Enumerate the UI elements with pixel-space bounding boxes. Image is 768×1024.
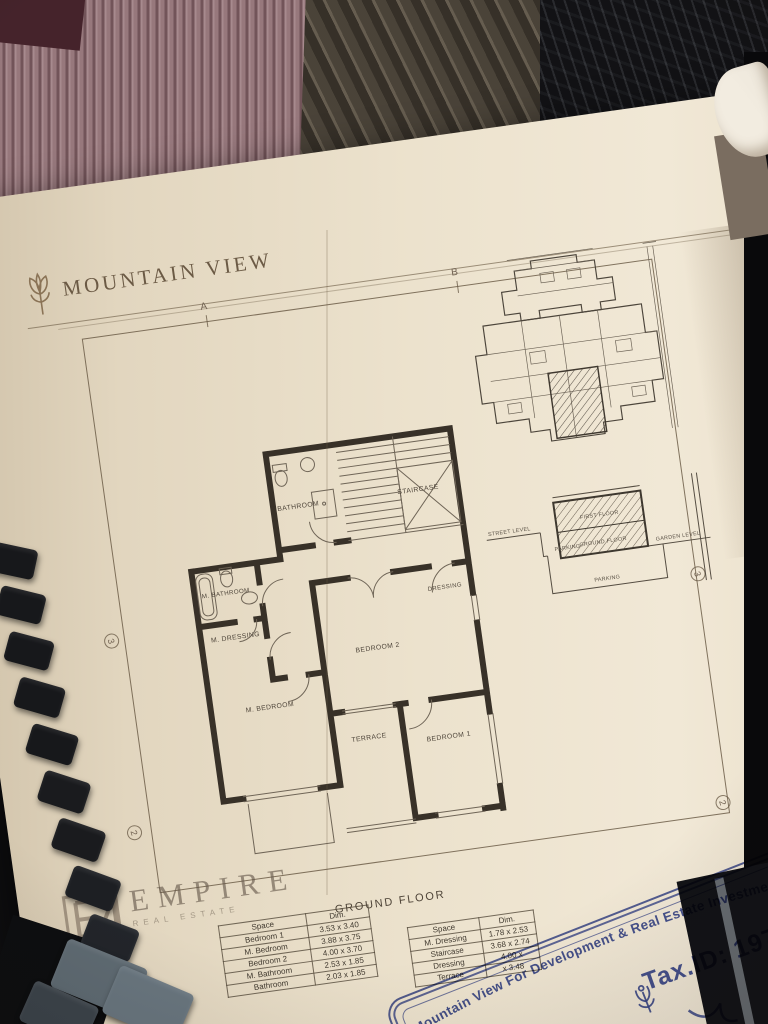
stamp-signature-stroke	[689, 995, 738, 1024]
section-street-level-label: STREET LEVEL	[488, 526, 531, 538]
fabric-maroon-corner	[0, 0, 86, 51]
room-label-m-bedroom: M. BEDROOM	[245, 701, 294, 715]
section-parking-lower-label: PARKING	[594, 574, 621, 584]
floor-plan: BATHROOM STAIRCASE M. BATHROOM M. DRESSI…	[150, 393, 519, 866]
grid-label-left-3: 3	[102, 632, 121, 651]
room-label-bathroom: BATHROOM	[277, 500, 320, 513]
room-label-m-dressing: M. DRESSING	[211, 631, 261, 645]
room-label-terrace: TERRACE	[351, 732, 387, 744]
brand-header: MOUNTAIN VIEW	[22, 240, 275, 318]
room-label-staircase: STAIRCASE	[397, 484, 439, 497]
plan-room-labels: BATHROOM STAIRCASE M. BATHROOM M. DRESSI…	[191, 482, 483, 772]
room-label-bedroom1: BEDROOM 1	[426, 731, 471, 744]
brand-wordmark: MOUNTAIN VIEW	[61, 248, 274, 302]
grid-label-left-2: 2	[125, 823, 144, 842]
photo-of-floor-plan: MOUNTAIN VIEW A B 3 2 3 2	[0, 0, 768, 1024]
key-plan-unit-hatched	[548, 366, 607, 438]
paper-crease	[326, 230, 328, 895]
key-plan	[449, 233, 687, 466]
room-label-bedroom2: BEDROOM 2	[355, 642, 400, 655]
flower-icon	[22, 270, 58, 318]
section-garden-level-label: GARDEN LEVEL	[655, 531, 700, 543]
grid-label-a: A	[200, 301, 208, 313]
room-label-m-bathroom: M. BATHROOM	[201, 587, 250, 601]
